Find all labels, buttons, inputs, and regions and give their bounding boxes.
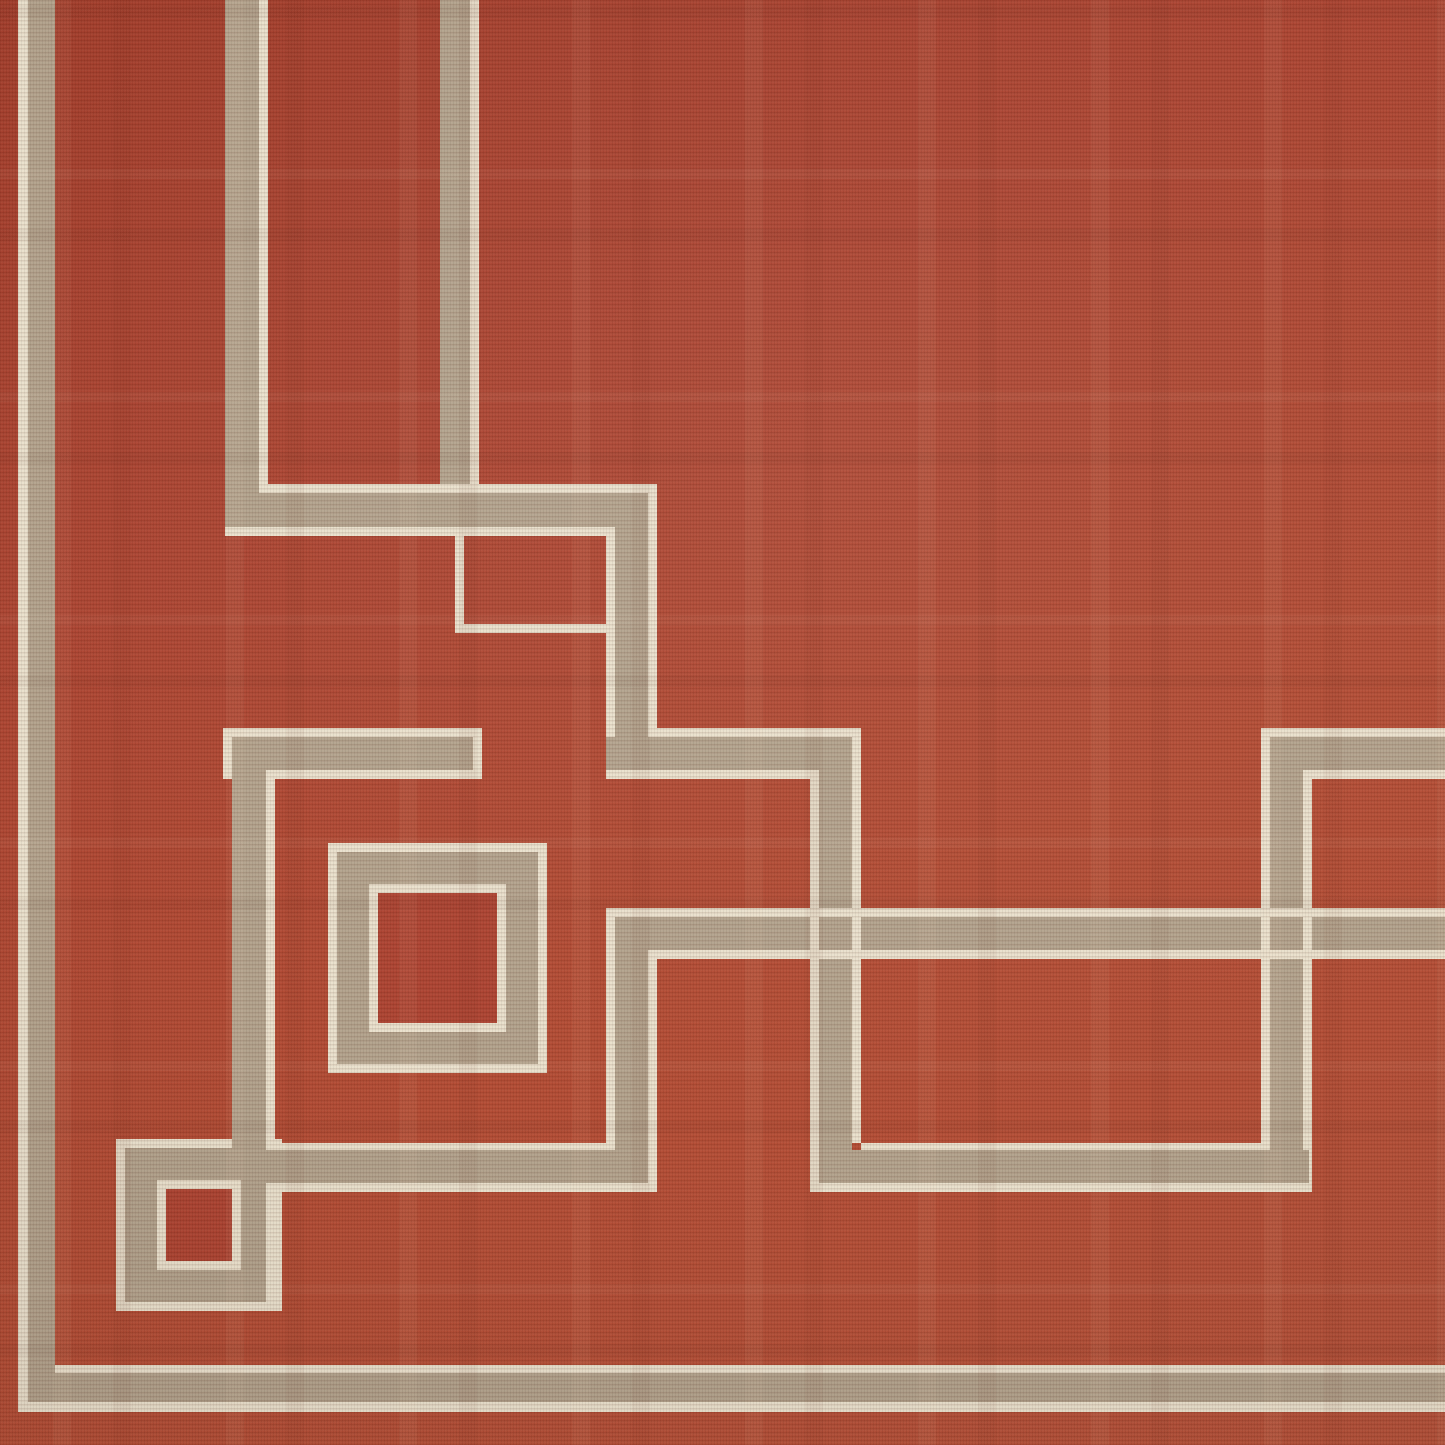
rug-photo xyxy=(0,0,1445,1445)
v4-left-cream-over-band-c xyxy=(1261,917,1270,950)
band-c-top-cream-over-v6 xyxy=(819,908,852,917)
detail-layer xyxy=(0,0,1445,1445)
small-square-center-red xyxy=(166,1189,232,1261)
band-c-bottom-cream-over-v6 xyxy=(819,950,852,959)
big-square-center-red xyxy=(378,893,497,1023)
v4-right-cream-over-band-c xyxy=(1303,917,1312,950)
band-c-bottom-cream-over-v4 xyxy=(1270,950,1303,959)
v6-left-cream-over-band-c xyxy=(810,917,819,950)
band-c-top-cream-over-v4 xyxy=(1270,908,1303,917)
v6-right-cream-over-band-c xyxy=(852,917,861,950)
